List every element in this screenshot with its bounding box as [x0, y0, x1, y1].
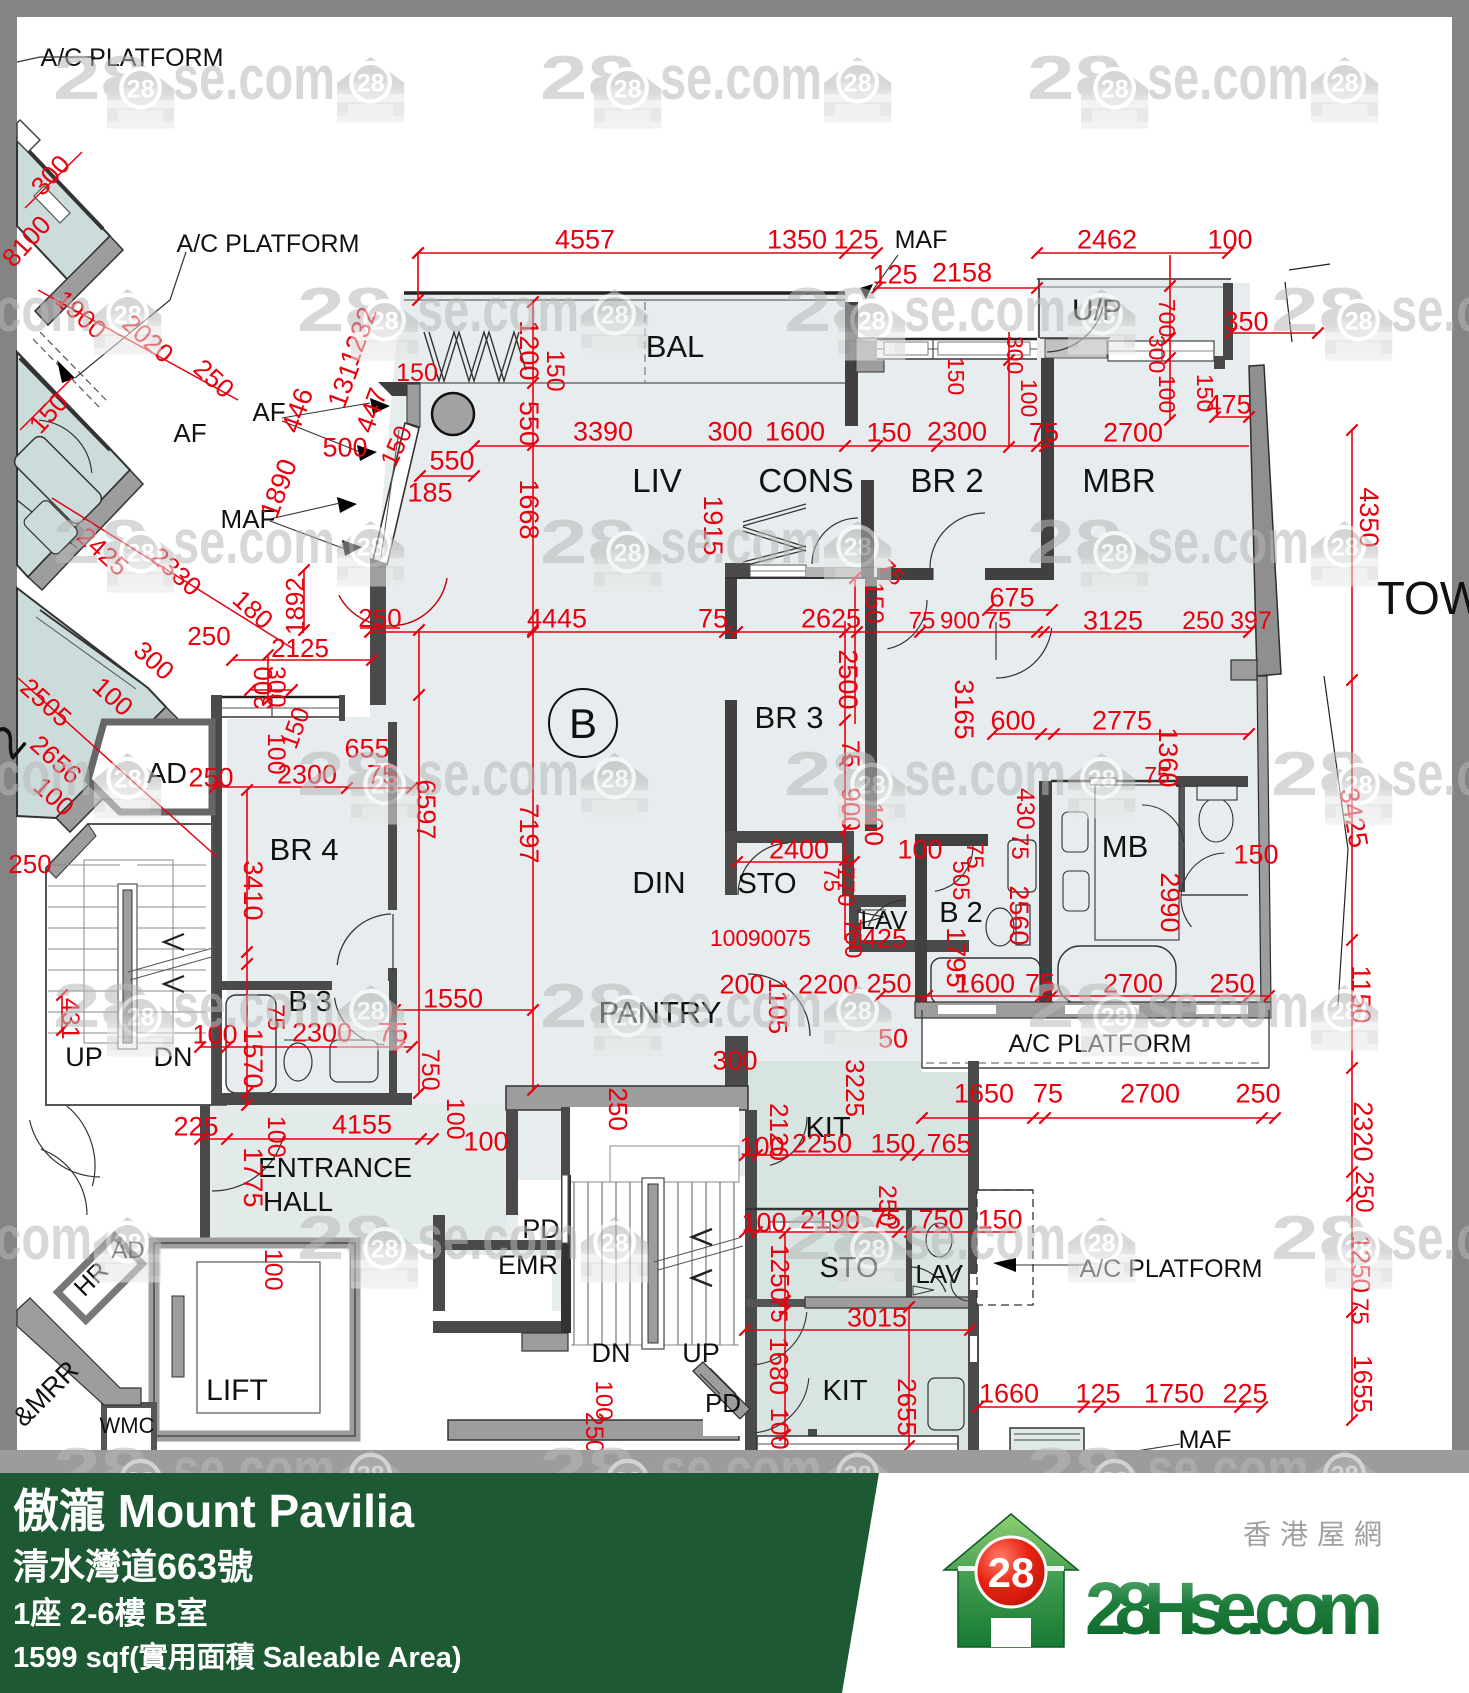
- svg-text:se.com: se.com: [1391, 276, 1469, 345]
- svg-text:2250: 2250: [792, 1128, 852, 1158]
- svg-text:550: 550: [429, 445, 474, 475]
- svg-text:28: 28: [614, 75, 642, 103]
- svg-text:STO: STO: [737, 868, 796, 900]
- svg-text:75: 75: [785, 925, 811, 951]
- svg-text:1655: 1655: [1348, 1355, 1378, 1413]
- svg-text:se.com: se.com: [904, 276, 1066, 345]
- svg-text:2500: 2500: [833, 649, 863, 709]
- svg-text:3125: 3125: [1083, 605, 1143, 635]
- svg-text:28: 28: [1101, 539, 1129, 567]
- svg-text:397: 397: [1230, 607, 1272, 635]
- svg-text:75: 75: [961, 842, 988, 869]
- svg-text:28: 28: [371, 307, 399, 335]
- svg-text:LIV: LIV: [632, 462, 682, 499]
- svg-text:se.com: se.com: [417, 740, 579, 809]
- svg-text:UP: UP: [65, 1042, 103, 1072]
- svg-text:28: 28: [1345, 1235, 1373, 1263]
- svg-text:100: 100: [1154, 375, 1180, 413]
- svg-text:28: 28: [844, 997, 872, 1025]
- svg-text:2775: 2775: [1092, 705, 1152, 735]
- svg-text:250: 250: [603, 1087, 633, 1130]
- svg-text:75: 75: [1006, 833, 1033, 860]
- svg-text:2625: 2625: [801, 603, 861, 633]
- svg-text:2655: 2655: [892, 1378, 922, 1436]
- svg-text:28: 28: [1088, 765, 1116, 793]
- svg-text:2125: 2125: [271, 633, 329, 663]
- svg-text:2300: 2300: [927, 416, 987, 446]
- svg-text:se.com: se.com: [904, 1204, 1066, 1273]
- svg-text:MB: MB: [1102, 829, 1149, 864]
- svg-text:28: 28: [1101, 1003, 1129, 1031]
- svg-text:250: 250: [8, 849, 51, 879]
- svg-text:150: 150: [541, 350, 569, 392]
- svg-text:se.com: se.com: [0, 276, 92, 345]
- svg-text:3225: 3225: [840, 1059, 870, 1117]
- svg-text:28: 28: [1345, 307, 1373, 335]
- svg-text:600: 600: [990, 705, 1035, 735]
- svg-text:香港屋網: 香港屋網: [1243, 1519, 1391, 1550]
- svg-text:100: 100: [259, 1249, 287, 1291]
- svg-text:清水灣道663號: 清水灣道663號: [13, 1546, 253, 1587]
- svg-text:250: 250: [187, 621, 230, 651]
- svg-text:28: 28: [614, 539, 642, 567]
- svg-text:WMC: WMC: [100, 1413, 155, 1438]
- svg-text:3390: 3390: [573, 416, 633, 446]
- svg-text:BAL: BAL: [646, 329, 705, 364]
- svg-text:28: 28: [371, 771, 399, 799]
- svg-text:se.com: se.com: [1391, 1204, 1469, 1273]
- svg-text:250: 250: [188, 762, 233, 792]
- svg-text:1600: 1600: [765, 416, 825, 446]
- svg-text:28: 28: [858, 307, 886, 335]
- svg-text:2320: 2320: [1348, 1101, 1378, 1161]
- svg-text:100: 100: [441, 1098, 469, 1140]
- svg-text:28: 28: [114, 301, 142, 329]
- svg-text:1750: 1750: [1144, 1378, 1204, 1408]
- svg-text:150: 150: [866, 417, 911, 447]
- svg-text:75: 75: [1144, 762, 1170, 788]
- svg-text:28: 28: [844, 533, 872, 561]
- svg-text:150: 150: [860, 582, 888, 624]
- svg-text:28: 28: [844, 69, 872, 97]
- svg-text:100: 100: [262, 1116, 290, 1158]
- svg-text:se.com: se.com: [173, 972, 335, 1041]
- svg-text:2700: 2700: [1120, 1078, 1180, 1108]
- svg-text:75: 75: [698, 603, 728, 633]
- svg-text:150: 150: [1233, 839, 1278, 869]
- svg-text:150: 150: [870, 1128, 915, 1158]
- svg-text:1600: 1600: [955, 968, 1015, 998]
- svg-text:BR 4: BR 4: [270, 832, 339, 867]
- svg-text:28: 28: [1101, 75, 1129, 103]
- svg-text:4155: 4155: [332, 1109, 392, 1139]
- svg-text:250: 250: [866, 968, 911, 998]
- svg-text:2700: 2700: [1103, 417, 1163, 447]
- svg-text:傲瀧 Mount Pavilia: 傲瀧 Mount Pavilia: [13, 1485, 415, 1537]
- svg-text:100: 100: [897, 834, 942, 864]
- svg-text:250: 250: [1182, 607, 1224, 635]
- svg-text:28: 28: [114, 1229, 142, 1257]
- svg-text:100: 100: [1016, 379, 1042, 417]
- svg-text:250: 250: [1235, 1078, 1280, 1108]
- svg-text:KIT: KIT: [822, 1375, 867, 1407]
- svg-text:1座 2-6樓 B室: 1座 2-6樓 B室: [13, 1596, 208, 1631]
- svg-text:se.com: se.com: [417, 1204, 579, 1273]
- svg-text:1550: 1550: [423, 983, 483, 1013]
- svg-text:28: 28: [1345, 771, 1373, 799]
- svg-text:100: 100: [741, 1207, 786, 1237]
- svg-text:PD: PD: [705, 1388, 741, 1418]
- svg-text:1660: 1660: [979, 1378, 1039, 1408]
- svg-text:550: 550: [514, 401, 544, 446]
- svg-text:4557: 4557: [555, 224, 615, 254]
- svg-text:se.com: se.com: [1147, 972, 1309, 1041]
- svg-text:2990: 2990: [1155, 872, 1185, 932]
- svg-text:28: 28: [127, 75, 155, 103]
- svg-text:28: 28: [1088, 301, 1116, 329]
- svg-text:2400: 2400: [769, 834, 829, 864]
- svg-text:125: 125: [1075, 1378, 1120, 1408]
- svg-text:se.com: se.com: [904, 740, 1066, 809]
- svg-text:3165: 3165: [949, 679, 979, 739]
- svg-text:LIFT: LIFT: [206, 1374, 268, 1407]
- svg-text:1650: 1650: [954, 1078, 1014, 1108]
- svg-text:300: 300: [712, 1045, 757, 1075]
- svg-text:A/C PLATFORM: A/C PLATFORM: [177, 230, 360, 258]
- svg-text:185: 185: [407, 477, 452, 507]
- svg-text:3015: 3015: [847, 1302, 907, 1332]
- svg-text:28: 28: [858, 1235, 886, 1263]
- svg-text:75: 75: [819, 867, 844, 891]
- svg-text:1425: 1425: [847, 923, 907, 953]
- svg-text:125: 125: [833, 224, 878, 254]
- svg-text:150: 150: [396, 359, 438, 387]
- svg-text:MBR: MBR: [1082, 462, 1155, 499]
- svg-text:28: 28: [357, 997, 385, 1025]
- svg-text:28: 28: [357, 69, 385, 97]
- svg-text:3410: 3410: [238, 860, 268, 920]
- svg-text:1350: 1350: [767, 224, 827, 254]
- svg-text:BR 2: BR 2: [910, 462, 983, 499]
- svg-text:28: 28: [127, 1003, 155, 1031]
- svg-text:75: 75: [909, 607, 936, 634]
- svg-text:4445: 4445: [527, 603, 587, 633]
- svg-text:900: 900: [940, 607, 980, 634]
- svg-text:300: 300: [1144, 335, 1170, 373]
- svg-text:se.com: se.com: [417, 276, 579, 345]
- svg-text:28Hse.com: 28Hse.com: [1085, 1567, 1383, 1650]
- svg-text:100: 100: [463, 1126, 508, 1156]
- svg-text:TOW: TOW: [1377, 572, 1469, 624]
- svg-text:300: 300: [707, 416, 752, 446]
- svg-text:28: 28: [1331, 69, 1359, 97]
- svg-text:se.com: se.com: [173, 508, 335, 577]
- svg-text:CONS: CONS: [758, 462, 853, 499]
- svg-text:se.com: se.com: [0, 740, 92, 809]
- svg-text:765: 765: [926, 1128, 971, 1158]
- svg-text:500: 500: [322, 432, 367, 462]
- svg-text:28: 28: [1088, 1229, 1116, 1257]
- svg-text:28: 28: [1331, 533, 1359, 561]
- svg-text:se.com: se.com: [660, 44, 822, 113]
- svg-text:1599 sqf(實用面積 Saleable Area): 1599 sqf(實用面積 Saleable Area): [13, 1640, 462, 1674]
- svg-text:MAF: MAF: [895, 226, 948, 254]
- svg-text:AF: AF: [173, 418, 206, 448]
- svg-text:&MRR: &MRR: [7, 1355, 84, 1432]
- svg-text:100: 100: [1207, 224, 1252, 254]
- svg-text:se.com: se.com: [1147, 508, 1309, 577]
- svg-text:28: 28: [127, 539, 155, 567]
- svg-text:se.com: se.com: [1391, 740, 1469, 809]
- svg-text:se.com: se.com: [1147, 44, 1309, 113]
- svg-text:1892: 1892: [280, 577, 310, 635]
- svg-text:B 2: B 2: [939, 897, 983, 929]
- svg-text:28: 28: [114, 765, 142, 793]
- svg-text:28: 28: [601, 301, 629, 329]
- svg-text:28: 28: [371, 1235, 399, 1263]
- svg-text:75: 75: [1029, 417, 1059, 447]
- svg-text:7197: 7197: [514, 803, 544, 863]
- svg-text:2462: 2462: [1077, 224, 1137, 254]
- svg-text:se.com: se.com: [0, 1204, 92, 1273]
- svg-text:75: 75: [1346, 1298, 1373, 1325]
- svg-text:150: 150: [943, 357, 969, 395]
- svg-text:1680: 1680: [764, 1337, 794, 1395]
- svg-text:28: 28: [858, 771, 886, 799]
- svg-text:675: 675: [989, 582, 1034, 612]
- svg-text:75: 75: [1033, 1078, 1063, 1108]
- svg-text:se.com: se.com: [173, 44, 335, 113]
- svg-text:750: 750: [416, 1049, 444, 1091]
- svg-text:446: 446: [276, 384, 320, 437]
- svg-text:28: 28: [614, 1003, 642, 1031]
- svg-text:350: 350: [1223, 306, 1268, 336]
- svg-text:28: 28: [601, 1229, 629, 1257]
- svg-text:100: 100: [739, 1131, 784, 1161]
- svg-text:900: 900: [748, 925, 786, 951]
- svg-text:100: 100: [710, 925, 748, 951]
- svg-text:28: 28: [988, 1549, 1035, 1596]
- svg-text:DN: DN: [592, 1338, 631, 1368]
- svg-text:UP: UP: [682, 1338, 720, 1368]
- svg-text:700: 700: [1154, 299, 1180, 337]
- svg-text:DIN: DIN: [632, 865, 685, 900]
- svg-text:BR 3: BR 3: [755, 700, 824, 735]
- svg-text:28: 28: [357, 533, 385, 561]
- svg-text:180: 180: [227, 584, 279, 635]
- svg-text:225: 225: [173, 1111, 218, 1141]
- svg-text:2560: 2560: [1004, 885, 1034, 945]
- svg-text:475: 475: [1206, 389, 1251, 419]
- svg-text:225: 225: [1222, 1378, 1267, 1408]
- svg-text:se.com: se.com: [660, 508, 822, 577]
- svg-text:28: 28: [1331, 997, 1359, 1025]
- svg-text:se.com: se.com: [660, 972, 822, 1041]
- svg-text:28: 28: [601, 765, 629, 793]
- svg-text:100: 100: [590, 1380, 617, 1420]
